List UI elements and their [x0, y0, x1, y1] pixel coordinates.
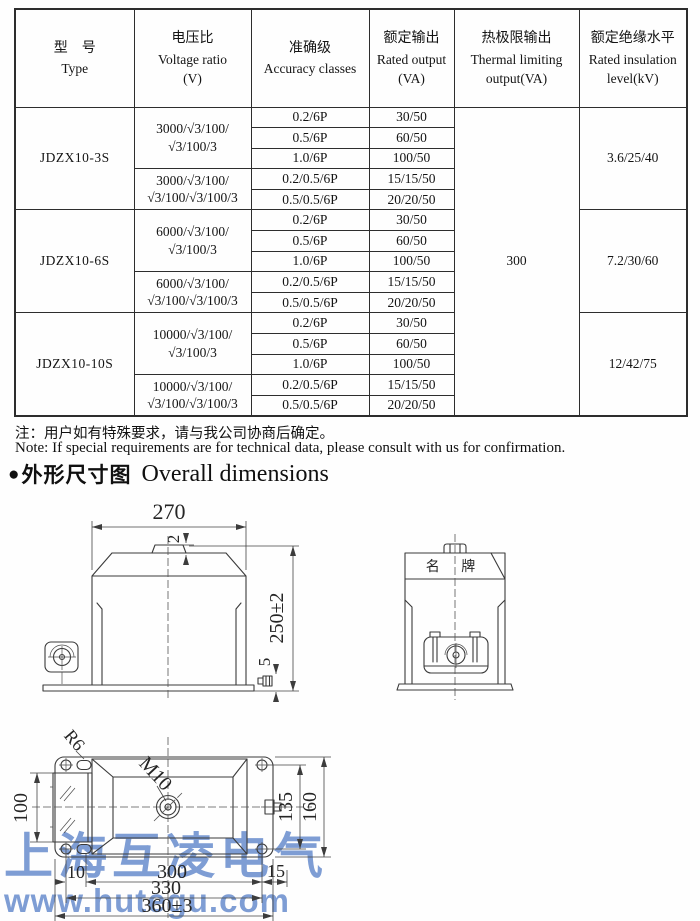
header-line: (VA) — [370, 69, 454, 89]
voltage-cell: 6000/√3/100/√3/100/√3/100/3 — [134, 272, 251, 313]
section-heading: ● 外形尺寸图 Overall dimensions — [8, 459, 329, 489]
header-line: Rated output — [370, 50, 454, 70]
voltage-cell: 10000/√3/100/√3/100/3 — [134, 313, 251, 375]
table-header: 型 号 Type 电压比 Voltage ratio (V) 准确级 Accur… — [15, 9, 687, 107]
col-header-thermal-output: 热极限输出 Thermal limiting output(VA) — [454, 9, 579, 107]
accuracy-cell: 0.2/0.5/6P — [251, 169, 369, 190]
accuracy-cell: 0.5/0.5/6P — [251, 395, 369, 416]
table-row: JDZX10-10S10000/√3/100/√3/100/30.2/6P30/… — [15, 313, 687, 334]
output-cell: 30/50 — [369, 313, 454, 334]
table-row: JDZX10-6S6000/√3/100/√3/100/30.2/6P30/50… — [15, 210, 687, 231]
header-line: (V) — [135, 69, 251, 89]
type-cell: JDZX10-6S — [15, 210, 134, 313]
output-cell: 30/50 — [369, 107, 454, 128]
accuracy-cell: 0.5/6P — [251, 128, 369, 149]
accuracy-cell: 1.0/6P — [251, 148, 369, 169]
output-cell: 15/15/50 — [369, 169, 454, 190]
header-line: Voltage ratio — [135, 50, 251, 70]
output-cell: 100/50 — [369, 251, 454, 272]
accuracy-cell: 0.2/6P — [251, 107, 369, 128]
col-header-accuracy: 准确级 Accuracy classes — [251, 9, 369, 107]
header-line: Accuracy classes — [252, 59, 369, 79]
header-line: output(VA) — [455, 69, 579, 89]
front-cap-dim: 2 — [164, 535, 183, 544]
spec-table: 型 号 Type 电压比 Voltage ratio (V) 准确级 Accur… — [14, 8, 688, 417]
header-line: level(kV) — [580, 69, 687, 89]
output-cell: 20/20/50 — [369, 189, 454, 210]
front-bolt-dim: 5 — [255, 658, 274, 667]
accuracy-cell: 0.2/6P — [251, 313, 369, 334]
note-english: Note: If special requirements are for te… — [15, 440, 565, 457]
plan-view: R6 M10 100 135 160 10 300 15 330 — [10, 726, 331, 921]
accuracy-cell: 0.5/0.5/6P — [251, 292, 369, 313]
header-line: Type — [16, 59, 134, 79]
output-cell: 20/20/50 — [369, 395, 454, 416]
col-header-voltage-ratio: 电压比 Voltage ratio (V) — [134, 9, 251, 107]
accuracy-cell: 1.0/6P — [251, 251, 369, 272]
accuracy-cell: 0.2/6P — [251, 210, 369, 231]
insulation-cell: 7.2/30/60 — [579, 210, 687, 313]
header-line: 额定输出 — [370, 28, 454, 50]
voltage-cell: 3000/√3/100/√3/100/√3/100/3 — [134, 169, 251, 210]
overall-dimensions-drawing: 270 2 250±2 5 — [0, 500, 700, 921]
accuracy-cell: 0.5/0.5/6P — [251, 189, 369, 210]
output-cell: 20/20/50 — [369, 292, 454, 313]
output-cell: 60/50 — [369, 231, 454, 252]
type-cell: JDZX10-3S — [15, 107, 134, 210]
accuracy-cell: 1.0/6P — [251, 354, 369, 375]
header-line: 准确级 — [252, 38, 369, 60]
section-title-cn: 外形尺寸图 — [21, 459, 131, 489]
header-line: 热极限输出 — [455, 28, 579, 50]
col-header-type: 型 号 Type — [15, 9, 134, 107]
output-cell: 100/50 — [369, 354, 454, 375]
insulation-cell: 3.6/25/40 — [579, 107, 687, 210]
col-header-rated-output: 额定输出 Rated output (VA) — [369, 9, 454, 107]
output-cell: 60/50 — [369, 334, 454, 355]
side-view: 名 牌 — [397, 534, 513, 700]
header-line: 电压比 — [135, 28, 251, 50]
voltage-cell: 10000/√3/100/√3/100/√3/100/3 — [134, 375, 251, 416]
plan-total-length-dim: 360±3 — [142, 895, 193, 917]
voltage-cell: 3000/√3/100/√3/100/3 — [134, 107, 251, 169]
front-view: 270 2 250±2 5 — [43, 500, 299, 700]
plan-r6-label: R6 — [60, 726, 89, 755]
output-cell: 15/15/50 — [369, 375, 454, 396]
output-cell: 60/50 — [369, 128, 454, 149]
terminal-box — [53, 773, 92, 842]
output-cell: 15/15/50 — [369, 272, 454, 293]
header-line: Thermal limiting — [455, 50, 579, 70]
thermal-cell: 300 — [454, 107, 579, 416]
front-width-dim: 270 — [153, 500, 186, 524]
output-cell: 100/50 — [369, 148, 454, 169]
bullet-icon: ● — [8, 465, 19, 484]
plan-depth-dim: 160 — [299, 792, 321, 822]
plan-offset-left-dim: 10 — [67, 862, 85, 882]
earth-bolt — [258, 676, 272, 686]
plan-left-dim: 100 — [10, 793, 32, 823]
datasheet-page: 型 号 Type 电压比 Voltage ratio (V) 准确级 Accur… — [0, 0, 700, 921]
accuracy-cell: 0.5/6P — [251, 334, 369, 355]
header-line: Rated insulation — [580, 50, 687, 70]
insulation-cell: 12/42/75 — [579, 313, 687, 416]
accuracy-cell: 0.5/6P — [251, 231, 369, 252]
voltage-cell: 6000/√3/100/√3/100/3 — [134, 210, 251, 272]
header-line: 型 号 — [16, 38, 134, 60]
nameplate-label: 名 牌 — [426, 558, 485, 575]
accuracy-cell: 0.2/0.5/6P — [251, 375, 369, 396]
plan-offset-right-dim: 15 — [267, 861, 285, 881]
output-cell: 30/50 — [369, 210, 454, 231]
accuracy-cell: 0.2/0.5/6P — [251, 272, 369, 293]
section-title-en: Overall dimensions — [141, 461, 328, 488]
front-height-dim: 250±2 — [266, 593, 288, 644]
type-cell: JDZX10-10S — [15, 313, 134, 416]
plan-hole-span-dim: 135 — [275, 792, 297, 822]
col-header-insulation: 额定绝缘水平 Rated insulation level(kV) — [579, 9, 687, 107]
table-body: JDZX10-3S3000/√3/100/√3/100/30.2/6P30/50… — [15, 107, 687, 416]
header-line: 额定绝缘水平 — [580, 28, 687, 50]
table-row: JDZX10-3S3000/√3/100/√3/100/30.2/6P30/50… — [15, 107, 687, 128]
